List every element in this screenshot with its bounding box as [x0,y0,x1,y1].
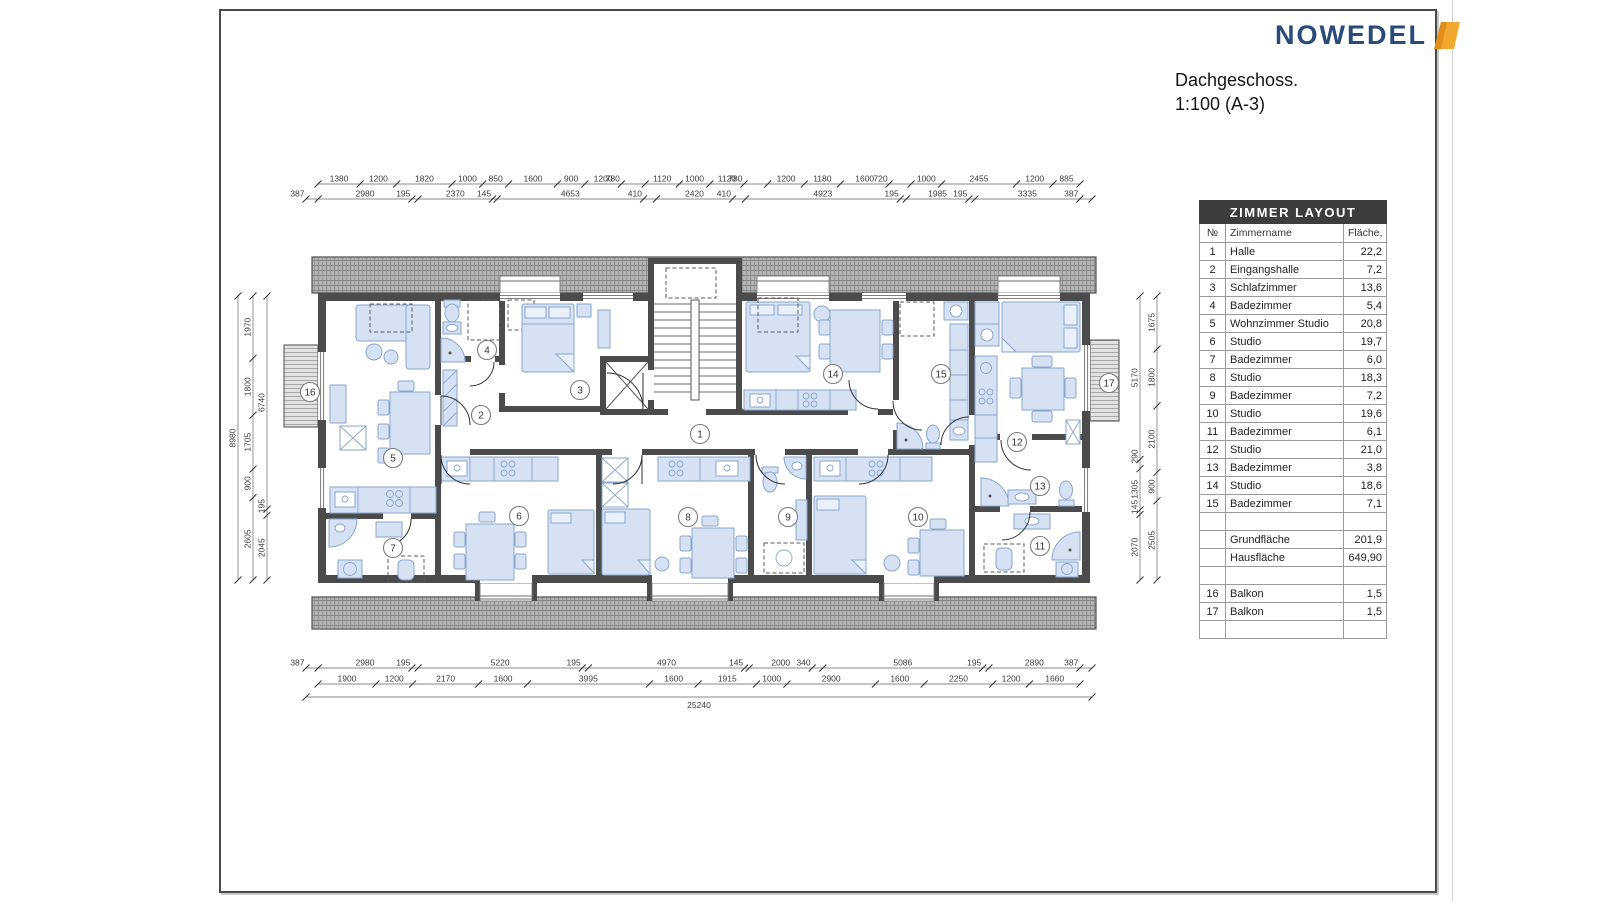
svg-text:2070: 2070 [1130,538,1140,557]
svg-text:4653: 4653 [561,189,580,199]
svg-text:25240: 25240 [687,700,711,710]
svg-text:2250: 2250 [949,674,968,684]
svg-text:885: 885 [1059,174,1073,184]
svg-text:1200: 1200 [1025,174,1044,184]
svg-text:12: 12 [1011,438,1023,449]
svg-text:5086: 5086 [893,658,912,668]
svg-text:1970: 1970 [243,317,253,336]
svg-text:1305: 1305 [1130,480,1140,499]
stair-core [648,258,742,415]
svg-text:780: 780 [728,174,742,184]
svg-text:4970: 4970 [657,658,676,668]
svg-text:195: 195 [396,189,410,199]
svg-text:14: 14 [827,370,839,381]
floor-plan: 1380120018201000850160090012007801120100… [0,0,1600,901]
svg-text:1200: 1200 [1002,674,1021,684]
svg-text:410: 410 [628,189,642,199]
svg-text:145: 145 [1130,500,1140,514]
svg-text:13: 13 [1034,482,1046,493]
svg-text:2370: 2370 [446,189,465,199]
elevator [600,356,654,415]
svg-text:2505: 2505 [1147,531,1157,550]
svg-text:1000: 1000 [917,174,936,184]
svg-text:6740: 6740 [257,393,267,412]
svg-text:7: 7 [390,544,396,555]
svg-text:900: 900 [1147,479,1157,493]
svg-text:1600: 1600 [855,174,874,184]
svg-text:2980: 2980 [356,189,375,199]
svg-text:850: 850 [489,174,503,184]
svg-text:5220: 5220 [491,658,510,668]
svg-text:195: 195 [953,189,967,199]
svg-text:1800: 1800 [243,377,253,396]
svg-text:2605: 2605 [243,529,253,548]
svg-text:17: 17 [1103,379,1115,390]
svg-text:4923: 4923 [813,189,832,199]
svg-text:2: 2 [478,411,484,422]
room-2-furniture [443,370,457,426]
svg-text:1600: 1600 [494,674,513,684]
svg-text:1985: 1985 [928,189,947,199]
svg-text:195: 195 [396,658,410,668]
svg-text:1200: 1200 [385,674,404,684]
svg-text:290: 290 [1130,449,1140,463]
svg-text:8980: 8980 [228,428,238,447]
svg-text:2890: 2890 [1025,658,1044,668]
svg-text:410: 410 [717,189,731,199]
svg-text:900: 900 [564,174,578,184]
room-3-furniture [508,300,610,372]
room-13-furniture [981,478,1074,506]
svg-text:387: 387 [1064,658,1078,668]
svg-text:2045: 2045 [257,538,267,557]
svg-text:3335: 3335 [1018,189,1037,199]
svg-text:1000: 1000 [685,174,704,184]
svg-text:1600: 1600 [524,174,543,184]
svg-text:9: 9 [785,513,791,524]
svg-text:145: 145 [477,189,491,199]
svg-text:145: 145 [729,658,743,668]
svg-text:1200: 1200 [777,174,796,184]
svg-text:387: 387 [290,658,304,668]
svg-text:720: 720 [873,174,887,184]
svg-text:6: 6 [516,512,522,523]
svg-text:387: 387 [290,189,304,199]
svg-text:195: 195 [967,658,981,668]
svg-text:780: 780 [606,174,620,184]
svg-text:340: 340 [796,658,810,668]
svg-text:1: 1 [697,430,703,441]
svg-text:2170: 2170 [436,674,455,684]
svg-text:15: 15 [935,370,947,381]
svg-text:2100: 2100 [1147,429,1157,448]
svg-text:2455: 2455 [970,174,989,184]
svg-text:1380: 1380 [330,174,349,184]
svg-text:1820: 1820 [415,174,434,184]
svg-text:1900: 1900 [338,674,357,684]
svg-text:2420: 2420 [685,189,704,199]
svg-text:3: 3 [577,386,583,397]
svg-text:8: 8 [685,513,691,524]
svg-text:5: 5 [390,454,396,465]
svg-text:1705: 1705 [243,432,253,451]
svg-text:1180: 1180 [813,174,832,184]
svg-text:2000: 2000 [771,658,790,668]
svg-text:195: 195 [567,658,581,668]
svg-text:900: 900 [243,476,253,490]
svg-text:1120: 1120 [653,174,672,184]
svg-text:1660: 1660 [1045,674,1064,684]
room-10-furniture [814,457,964,576]
svg-text:1800: 1800 [1147,368,1157,387]
svg-text:195: 195 [257,499,267,513]
svg-text:1000: 1000 [458,174,477,184]
svg-text:1200: 1200 [369,174,388,184]
svg-text:1600: 1600 [664,674,683,684]
svg-text:1600: 1600 [890,674,909,684]
svg-text:3995: 3995 [579,674,598,684]
room-14-furniture [744,298,893,410]
room-8-furniture [602,457,750,578]
stair-rail [691,300,699,400]
room-5-furniture [330,304,436,513]
svg-text:4: 4 [484,346,490,357]
svg-text:11: 11 [1035,542,1046,553]
svg-text:1675: 1675 [1147,313,1157,332]
svg-text:10: 10 [912,513,924,524]
svg-text:195: 195 [885,189,899,199]
svg-text:1915: 1915 [718,674,737,684]
svg-text:387: 387 [1064,189,1078,199]
svg-text:5170: 5170 [1130,368,1140,387]
svg-text:16: 16 [304,388,316,399]
svg-text:1000: 1000 [762,674,781,684]
svg-text:2900: 2900 [822,674,841,684]
svg-text:2980: 2980 [356,658,375,668]
